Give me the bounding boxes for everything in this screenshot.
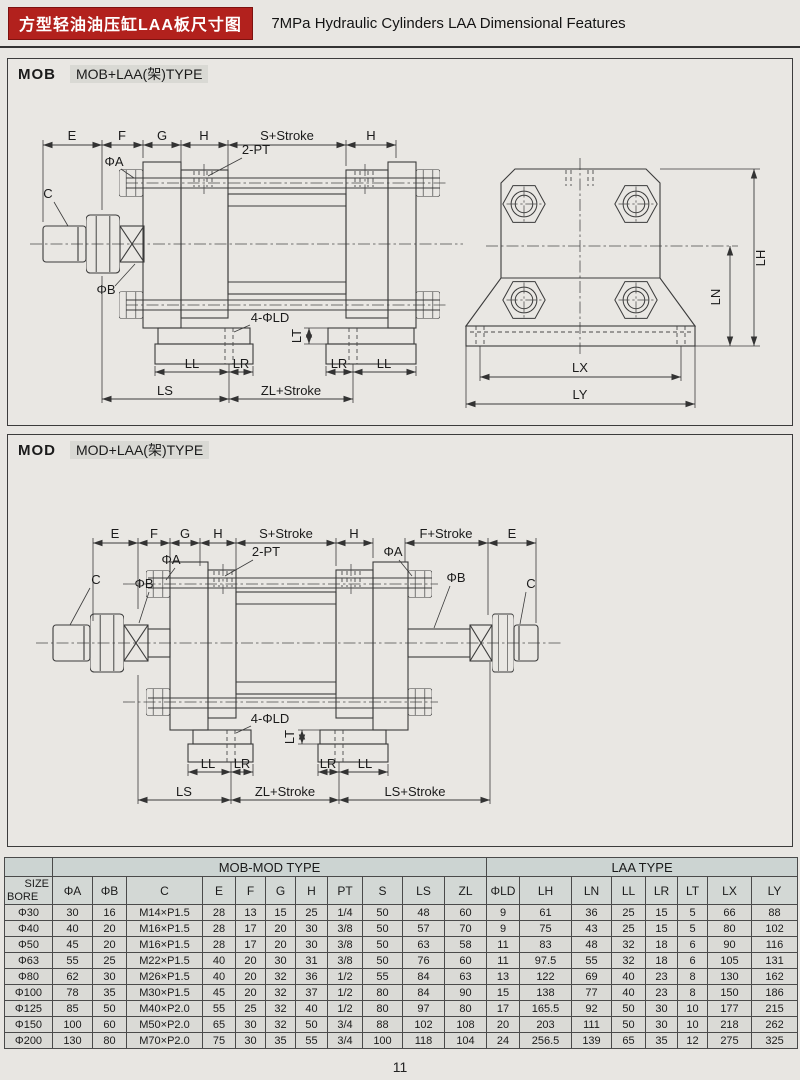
column-header: LR [646,877,678,905]
table-cell: 50 [296,1017,328,1033]
table-cell: 30 [236,1033,266,1049]
mod-title: MOD+LAA(架)TYPE [70,441,209,459]
table-cell: 18 [646,937,678,953]
table-row: Φ1007835M30×P1.5452032371/28084901513877… [5,985,798,1001]
dim-label-h: H [199,128,208,143]
table-cell: 17 [236,921,266,937]
row-bore-label: Φ150 [5,1017,53,1033]
table-cell: 20 [236,953,266,969]
column-header: LY [752,877,798,905]
table-cell: 177 [708,1001,752,1017]
table-cell: 37 [296,985,328,1001]
table-cell: 11 [487,937,520,953]
row-bore-label: Φ50 [5,937,53,953]
table-cell: 25 [612,905,646,921]
table-row: Φ1258550M40×P2.0552532401/280978017165.5… [5,1001,798,1017]
dim-label-lh: LH [753,250,768,267]
table-cell: 13 [487,969,520,985]
dim-label-lr2: LR [331,356,348,371]
mob-top-dims [43,140,396,222]
table-cell: 45 [203,985,236,1001]
table-body: Φ303016M14×P1.5281315251/450486096136251… [5,905,798,1049]
dimension-table-wrap: MOB-MOD TYPE LAA TYPE SIZE BORE ΦAΦBCEFG… [4,857,796,1049]
table-cell: 5 [678,921,708,937]
table-cell: 139 [572,1033,612,1049]
row-bore-label: Φ80 [5,969,53,985]
table-cell: 20 [236,985,266,1001]
table-cell: 80 [93,1033,127,1049]
table-cell: 48 [572,937,612,953]
table-cell: 20 [266,921,296,937]
mod-titlebar: MODMOD+LAA(架)TYPE [8,435,792,462]
mod-top-dims [93,538,536,623]
table-cell: 55 [363,969,403,985]
page-header: 方型轻油油压缸LAA板尺寸图 7MPa Hydraulic Cylinders … [0,0,800,48]
table-cell: M22×P1.5 [127,953,203,969]
table-cell: 62 [53,969,93,985]
table-cell: 104 [445,1033,487,1049]
table-cell: 80 [363,1001,403,1017]
table-cell: 65 [203,1017,236,1033]
label-4phild: 4-ΦLD [251,711,290,726]
table-cell: 8 [678,985,708,1001]
table-cell: 80 [445,1001,487,1017]
table-cell: 78 [53,985,93,1001]
table-cell: M26×P1.5 [127,969,203,985]
table-cell: 15 [487,985,520,1001]
table-cell: 30 [93,969,127,985]
table-cell: 76 [403,953,445,969]
table-cell: 1/2 [328,985,363,1001]
table-cell: 118 [403,1033,445,1049]
dim-label-lr: LR [234,756,251,771]
mob-titlebar: MOBMOB+LAA(架)TYPE [8,59,792,86]
table-cell: 90 [708,937,752,953]
dim-label-f-stroke: F+Stroke [419,526,472,541]
row-bore-label: Φ40 [5,921,53,937]
dim-label-f: F [150,526,158,541]
table-cell: 58 [445,937,487,953]
mob-bracket-view [466,158,738,354]
column-header: F [236,877,266,905]
table-cell: 50 [363,937,403,953]
table-cell: 50 [363,905,403,921]
table-cell: 35 [266,1033,296,1049]
table-cell: M14×P1.5 [127,905,203,921]
table-cell: 55 [203,1001,236,1017]
column-header: ΦA [53,877,93,905]
dim-label-s-stroke: S+Stroke [260,128,314,143]
table-cell: 105 [708,953,752,969]
table-cell: 150 [708,985,752,1001]
row-bore-label: Φ200 [5,1033,53,1049]
label-phi-a-left: ΦA [161,552,180,567]
table-cell: 23 [646,985,678,1001]
table-cell: 25 [236,1001,266,1017]
corner-size-label: SIZE [25,878,49,890]
label-phi-a: ΦA [104,154,123,169]
table-cell: 92 [572,1001,612,1017]
column-header: C [127,877,203,905]
table-cell: 50 [363,921,403,937]
mod-tag: MOD [18,442,56,459]
mob-drawing: E F G H S+Stroke H [8,114,788,414]
dim-label-ll2: LL [377,356,391,371]
table-cell: 55 [572,953,612,969]
table-cell: 8 [678,969,708,985]
table-cell: 215 [752,1001,798,1017]
section-mod: MODMOD+LAA(架)TYPE E F G H S+Stroke H F+S… [7,434,793,847]
column-header: LL [612,877,646,905]
table-cell: 20 [93,937,127,953]
dim-label-lx: LX [572,360,588,375]
table-cell: 32 [266,1017,296,1033]
table-cell: 32 [266,985,296,1001]
table-cell: 50 [363,953,403,969]
table-cell: 100 [53,1017,93,1033]
table-cell: 30 [296,921,328,937]
english-title: 7MPa Hydraulic Cylinders LAA Dimensional… [271,15,625,32]
dim-label-g: G [180,526,190,541]
dim-label-f: F [118,128,126,143]
table-cell: 75 [203,1033,236,1049]
label-2pt: 2-PT [252,544,280,559]
table-cell: 25 [93,953,127,969]
table-cell: 130 [53,1033,93,1049]
table-cell: 30 [53,905,93,921]
table-cell: 77 [572,985,612,1001]
column-header: LH [520,877,572,905]
table-cell: 218 [708,1017,752,1033]
table-cell: 83 [520,937,572,953]
table-cell: 116 [752,937,798,953]
table-cell: 3/8 [328,921,363,937]
column-header: ΦB [93,877,127,905]
dim-label-lt: LT [289,329,304,343]
table-cell: 16 [93,905,127,921]
table-cell: M16×P1.5 [127,921,203,937]
table-cell: 25 [296,905,328,921]
group-header-laa: LAA TYPE [487,858,798,877]
column-header: G [266,877,296,905]
column-header: H [296,877,328,905]
table-row: Φ635525M22×P1.5402030313/85076601197.555… [5,953,798,969]
dim-label-s-stroke: S+Stroke [259,526,313,541]
table-cell: 45 [53,937,93,953]
dim-label-lr: LR [233,356,250,371]
table-cell: 40 [53,921,93,937]
table-cell: 60 [445,905,487,921]
table-cell: 28 [203,905,236,921]
column-header: LN [572,877,612,905]
label-phi-a-right: ΦA [383,544,402,559]
table-row: Φ303016M14×P1.5281315251/450486096136251… [5,905,798,921]
table-cell: 28 [203,937,236,953]
table-cell: 50 [612,1017,646,1033]
table-cell: 36 [296,969,328,985]
table-row: Φ15010060M50×P2.0653032503/4881021082020… [5,1017,798,1033]
table-cell: 20 [236,969,266,985]
table-cell: 36 [572,905,612,921]
table-cell: 15 [646,905,678,921]
dim-label-ll2: LL [358,756,372,771]
table-cell: 32 [266,969,296,985]
table-cell: 138 [520,985,572,1001]
mob-title: MOB+LAA(架)TYPE [70,65,208,83]
table-cell: 40 [296,1001,328,1017]
table-cell: 325 [752,1033,798,1049]
dim-label-ls: LS [176,784,192,799]
table-cell: 50 [93,1001,127,1017]
dim-label-ls-stroke: LS+Stroke [384,784,445,799]
column-header: S [363,877,403,905]
table-cell: 10 [678,1001,708,1017]
mod-cylinder-body [146,562,432,730]
table-cell: 80 [708,921,752,937]
table-cell: 70 [445,921,487,937]
mod-left-rod [53,614,170,672]
table-cell: 100 [363,1033,403,1049]
table-cell: 35 [93,985,127,1001]
table-cell: 66 [708,905,752,921]
table-cell: 40 [612,969,646,985]
dim-label-e2: E [508,526,517,541]
table-cell: 57 [403,921,445,937]
table-cell: M30×P1.5 [127,985,203,1001]
table-cell: 60 [445,953,487,969]
column-header: ZL [445,877,487,905]
row-bore-label: Φ125 [5,1001,53,1017]
table-cell: 40 [203,953,236,969]
table-cell: 88 [752,905,798,921]
row-bore-label: Φ63 [5,953,53,969]
dim-label-lt: LT [282,730,297,744]
table-cell: 10 [678,1017,708,1033]
table-cell: 256.5 [520,1033,572,1049]
group-header-mob-mod: MOB-MOD TYPE [53,858,487,877]
table-cell: 1/2 [328,1001,363,1017]
table-cell: 69 [572,969,612,985]
table-row: Φ404020M16×P1.5281720303/850577097543251… [5,921,798,937]
table-cell: 162 [752,969,798,985]
table-cell: 32 [266,1001,296,1017]
table-cell: 186 [752,985,798,1001]
dim-label-ls: LS [157,383,173,398]
table-cell: 262 [752,1017,798,1033]
table-cell: 31 [296,953,328,969]
table-cell: 85 [53,1001,93,1017]
mob-tag: MOB [18,66,56,83]
table-cell: 28 [203,921,236,937]
row-bore-label: Φ30 [5,905,53,921]
label-4phild: 4-ΦLD [251,310,290,325]
table-cell: 90 [445,985,487,1001]
table-cell: 17 [487,1001,520,1017]
row-bore-label: Φ100 [5,985,53,1001]
table-cell: 30 [296,937,328,953]
dim-label-e: E [111,526,120,541]
table-cell: 6 [678,953,708,969]
table-cell: 18 [646,953,678,969]
table-cell: 40 [203,969,236,985]
table-cell: 32 [612,953,646,969]
table-cell: 111 [572,1017,612,1033]
dim-label-zl-stroke: ZL+Stroke [261,383,321,398]
chinese-title-badge: 方型轻油油压缸LAA板尺寸图 [8,7,253,40]
table-cell: 108 [445,1017,487,1033]
table-cell: 32 [612,937,646,953]
table-cell: 165.5 [520,1001,572,1017]
column-header: ΦLD [487,877,520,905]
dim-label-ln: LN [708,289,723,306]
page-number: 11 [0,1059,800,1075]
table-cell: 84 [403,969,445,985]
table-cell: 50 [612,1001,646,1017]
table-cell: 12 [678,1033,708,1049]
mob-cylinder-body [119,162,440,328]
dim-label-ly: LY [573,387,588,402]
table-row: Φ20013080M70×P2.0753035553/4100118104242… [5,1033,798,1049]
dim-label-g: G [157,128,167,143]
table-cell: M50×P2.0 [127,1017,203,1033]
table-cell: 30 [266,953,296,969]
table-cell: 1/2 [328,969,363,985]
table-cell: 20 [266,937,296,953]
column-header: LS [403,877,445,905]
table-cell: M40×P2.0 [127,1001,203,1017]
column-header: PT [328,877,363,905]
label-2pt: 2-PT [242,142,270,157]
table-cell: 122 [520,969,572,985]
column-header: E [203,877,236,905]
dim-label-lr2: LR [320,756,337,771]
dim-label-zl-stroke: ZL+Stroke [255,784,315,799]
table-cell: M16×P1.5 [127,937,203,953]
size-bore-corner-cell: SIZE BORE [5,877,53,905]
table-cell: 60 [93,1017,127,1033]
table-cell: 88 [363,1017,403,1033]
table-cell: 20 [93,921,127,937]
table-column-header-row: SIZE BORE ΦAΦBCEFGHPTSLSZLΦLDLHLNLLLRLTL… [5,877,798,905]
table-cell: 11 [487,953,520,969]
table-cell: 5 [678,905,708,921]
table-cell: 63 [403,937,445,953]
table-cell: 3/4 [328,1017,363,1033]
dim-label-ll: LL [185,356,199,371]
dim-label-ll: LL [201,756,215,771]
table-cell: 130 [708,969,752,985]
table-cell: 30 [646,1001,678,1017]
dim-label-h2: H [366,128,375,143]
group-empty-cell [5,858,53,877]
table-cell: 24 [487,1033,520,1049]
table-cell: 97 [403,1001,445,1017]
table-cell: 1/4 [328,905,363,921]
table-cell: 75 [520,921,572,937]
table-cell: 9 [487,905,520,921]
table-cell: 55 [53,953,93,969]
table-cell: 20 [487,1017,520,1033]
table-cell: 9 [487,921,520,937]
dim-label-h: H [213,526,222,541]
table-cell: M70×P2.0 [127,1033,203,1049]
table-cell: 84 [403,985,445,1001]
table-cell: 80 [363,985,403,1001]
table-cell: 102 [403,1017,445,1033]
mod-drawing: E F G H S+Stroke H F+Stroke E [8,520,788,812]
label-phi-b-right: ΦB [446,570,465,585]
dim-label-h2: H [349,526,358,541]
table-row: Φ806230M26×P1.5402032361/255846313122694… [5,969,798,985]
table-cell: 30 [646,1017,678,1033]
table-cell: 63 [445,969,487,985]
table-cell: 55 [296,1033,328,1049]
table-row: Φ504520M16×P1.5281720303/850635811834832… [5,937,798,953]
table-cell: 30 [236,1017,266,1033]
table-cell: 6 [678,937,708,953]
table-cell: 15 [266,905,296,921]
label-phi-b: ΦB [96,282,115,297]
table-cell: 13 [236,905,266,921]
table-cell: 25 [612,921,646,937]
section-mob: MOBMOB+LAA(架)TYPE [7,58,793,426]
table-cell: 43 [572,921,612,937]
table-cell: 40 [612,985,646,1001]
dimension-table: MOB-MOD TYPE LAA TYPE SIZE BORE ΦAΦBCEFG… [4,857,798,1049]
corner-bore-label: BORE [7,891,38,903]
table-cell: 131 [752,953,798,969]
table-cell: 17 [236,937,266,953]
table-cell: 61 [520,905,572,921]
table-cell: 3/4 [328,1033,363,1049]
table-cell: 15 [646,921,678,937]
table-cell: 35 [646,1033,678,1049]
table-cell: 65 [612,1033,646,1049]
table-cell: 48 [403,905,445,921]
label-c-left: C [91,572,100,587]
table-cell: 23 [646,969,678,985]
label-c: C [43,186,52,201]
table-cell: 3/8 [328,937,363,953]
label-phi-b-left: ΦB [134,576,153,591]
table-cell: 97.5 [520,953,572,969]
table-cell: 203 [520,1017,572,1033]
table-cell: 102 [752,921,798,937]
dim-label-e: E [68,128,77,143]
table-cell: 3/8 [328,953,363,969]
table-group-header-row: MOB-MOD TYPE LAA TYPE [5,858,798,877]
column-header: LX [708,877,752,905]
table-cell: 275 [708,1033,752,1049]
column-header: LT [678,877,708,905]
label-c-right: C [526,576,535,591]
